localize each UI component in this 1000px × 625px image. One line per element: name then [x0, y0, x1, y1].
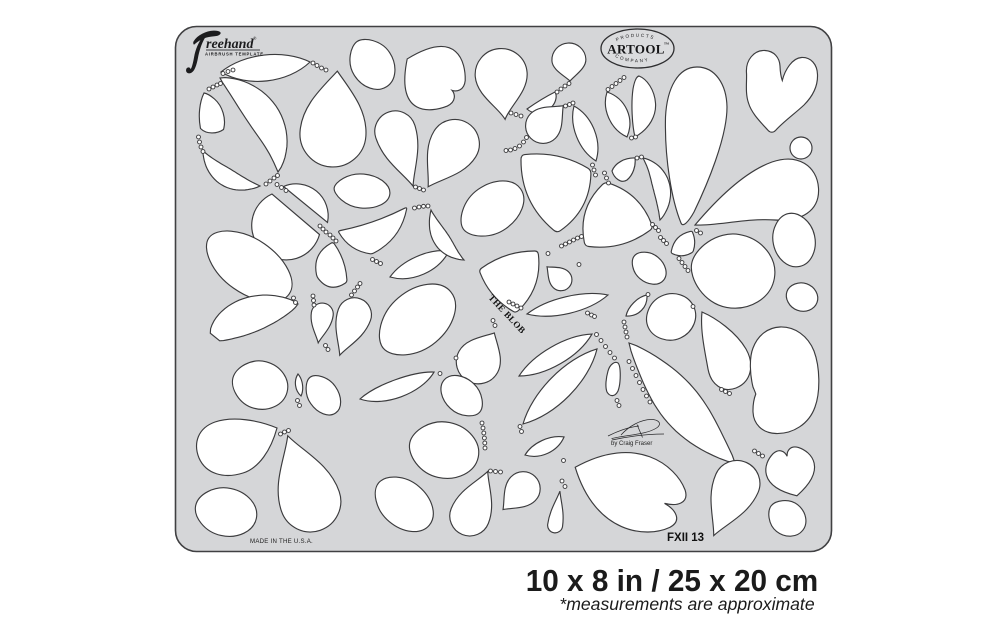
svg-text:*measurements are approximate: *measurements are approximate	[559, 594, 814, 614]
svg-text:TM: TM	[664, 42, 669, 46]
svg-text:reehand: reehand	[206, 37, 254, 52]
svg-text:FXII 13: FXII 13	[667, 532, 704, 544]
svg-text:MADE IN THE U.S.A.: MADE IN THE U.S.A.	[250, 538, 313, 545]
svg-text:AIRBRUSH TEMPLATE: AIRBRUSH TEMPLATE	[205, 51, 264, 56]
svg-text:by Craig Fraser: by Craig Fraser	[611, 441, 652, 447]
svg-text:ARTOOL: ARTOOL	[607, 42, 664, 57]
